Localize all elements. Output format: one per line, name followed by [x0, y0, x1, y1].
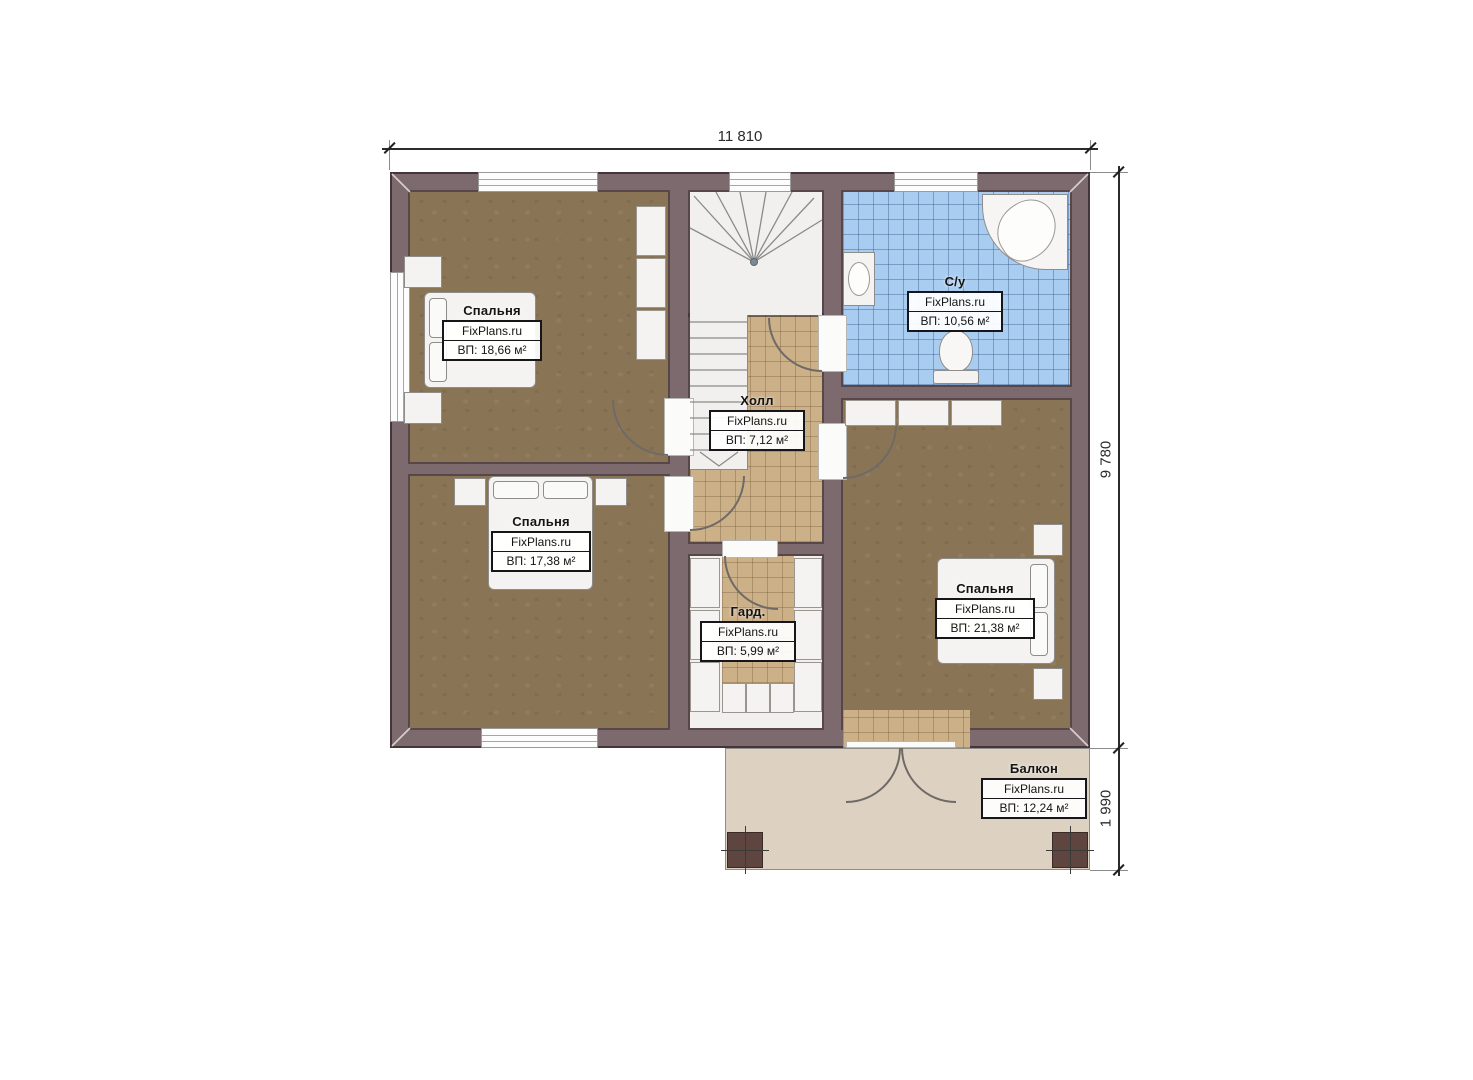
room-area: ВП: 18,66 м²: [444, 341, 540, 359]
floorplan-canvas: Спальня FixPlans.ru ВП: 18,66 м² Спальня…: [0, 0, 1473, 1080]
room-label-bedroom2: Спальня FixPlans.ru ВП: 17,38 м²: [491, 514, 591, 572]
room-info-box: FixPlans.ru ВП: 12,24 м²: [981, 778, 1087, 819]
watermark: FixPlans.ru: [937, 600, 1033, 619]
room-name: Холл: [709, 393, 805, 408]
window-stairs-top: [729, 172, 791, 192]
window-bathroom-top: [894, 172, 978, 192]
nightstand: [404, 256, 442, 288]
dim-extension: [1090, 172, 1128, 173]
balcony-column-right: [1052, 832, 1088, 868]
room-label-bathroom: С/у FixPlans.ru ВП: 10,56 м²: [907, 274, 1003, 332]
window-bedroom2-bottom: [481, 728, 598, 748]
watermark: FixPlans.ru: [493, 533, 589, 552]
room-info-box: FixPlans.ru ВП: 17,38 м²: [491, 531, 591, 572]
room-area: ВП: 21,38 м²: [937, 619, 1033, 637]
bathroom-door: [818, 315, 847, 372]
room-label-bedroom1: Спальня FixPlans.ru ВП: 18,66 м²: [442, 303, 542, 361]
room-area: ВП: 17,38 м²: [493, 552, 589, 570]
room-name: С/у: [907, 274, 1003, 289]
nightstand: [595, 478, 627, 506]
room-name: Балкон: [981, 761, 1087, 776]
room-info-box: FixPlans.ru ВП: 7,12 м²: [709, 410, 805, 451]
stair-landing: [690, 192, 822, 315]
room-label-hall: Холл FixPlans.ru ВП: 7,12 м²: [709, 393, 805, 451]
dim-label-right-balcony: 1 990: [1098, 779, 1115, 839]
room-info-box: FixPlans.ru ВП: 18,66 м²: [442, 320, 542, 361]
watermark: FixPlans.ru: [444, 322, 540, 341]
balcony-door-frame: [846, 741, 956, 748]
closet-cell: [845, 400, 896, 426]
watermark: FixPlans.ru: [711, 412, 803, 431]
dim-label-top: 11 810: [690, 128, 790, 145]
watermark: FixPlans.ru: [909, 293, 1001, 312]
wardrobe-shelf: [794, 610, 822, 660]
room-area: ВП: 7,12 м²: [711, 431, 803, 449]
wardrobe-shelf: [794, 558, 822, 608]
room-info-box: FixPlans.ru ВП: 10,56 м²: [907, 291, 1003, 332]
wardrobe-shelf: [746, 683, 770, 713]
nightstand: [404, 392, 442, 424]
room-name: Спальня: [491, 514, 591, 529]
dim-extension: [1090, 870, 1128, 871]
room-label-balcony: Балкон FixPlans.ru ВП: 12,24 м²: [981, 761, 1087, 819]
room-area: ВП: 12,24 м²: [983, 799, 1085, 817]
room-name: Гард.: [700, 604, 796, 619]
room-area: ВП: 5,99 м²: [702, 642, 794, 660]
room-area: ВП: 10,56 м²: [909, 312, 1001, 330]
dim-label-right-main: 9 780: [1098, 430, 1115, 490]
watermark: FixPlans.ru: [983, 780, 1085, 799]
bedroom1-door: [664, 398, 694, 456]
nightstand: [1033, 668, 1063, 700]
dim-line-top: [382, 148, 1098, 150]
balcony-column-left: [727, 832, 763, 868]
wardrobe-shelf: [770, 683, 794, 713]
room-label-bedroom3: Спальня FixPlans.ru ВП: 21,38 м²: [935, 581, 1035, 639]
dim-extension: [1090, 748, 1128, 749]
nightstand: [1033, 524, 1063, 556]
pillow: [493, 481, 539, 499]
room-info-box: FixPlans.ru ВП: 21,38 м²: [935, 598, 1035, 639]
pillow: [543, 481, 588, 499]
window-bedroom1-top: [478, 172, 598, 192]
room-name: Спальня: [935, 581, 1035, 596]
room-info-box: FixPlans.ru ВП: 5,99 м²: [700, 621, 796, 662]
closet-cell: [898, 400, 949, 426]
room-label-wardrobe: Гард. FixPlans.ru ВП: 5,99 м²: [700, 604, 796, 662]
toilet-tank: [933, 370, 979, 384]
room-name: Спальня: [442, 303, 542, 318]
closet-cell: [636, 206, 666, 256]
watermark: FixPlans.ru: [702, 623, 794, 642]
closet-cell: [636, 258, 666, 308]
wardrobe-shelf: [690, 662, 720, 712]
wardrobe-shelf: [690, 558, 720, 608]
sink-bowl: [848, 262, 870, 296]
nightstand: [454, 478, 486, 506]
closet-cell: [951, 400, 1002, 426]
wardrobe-shelf: [794, 662, 822, 712]
dim-line-right: [1118, 166, 1120, 876]
closet-cell: [636, 310, 666, 360]
toilet-bowl: [939, 330, 973, 372]
wardrobe-shelf: [722, 683, 746, 713]
